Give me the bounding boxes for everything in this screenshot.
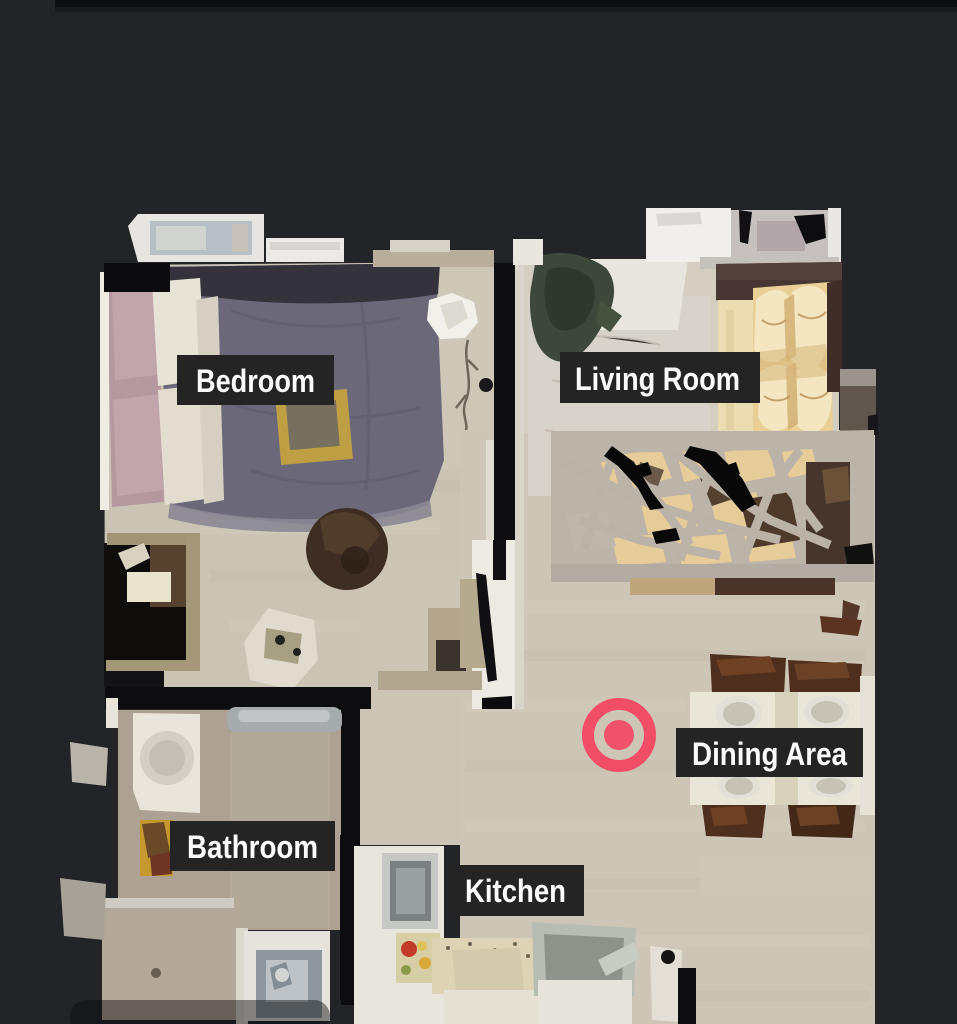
svg-text:Dining Area: Dining Area [692, 736, 847, 772]
svg-text:Bathroom: Bathroom [187, 829, 318, 865]
svg-text:Bedroom: Bedroom [196, 363, 315, 399]
svg-text:Living Room: Living Room [575, 361, 740, 397]
svg-text:Kitchen: Kitchen [465, 873, 566, 909]
